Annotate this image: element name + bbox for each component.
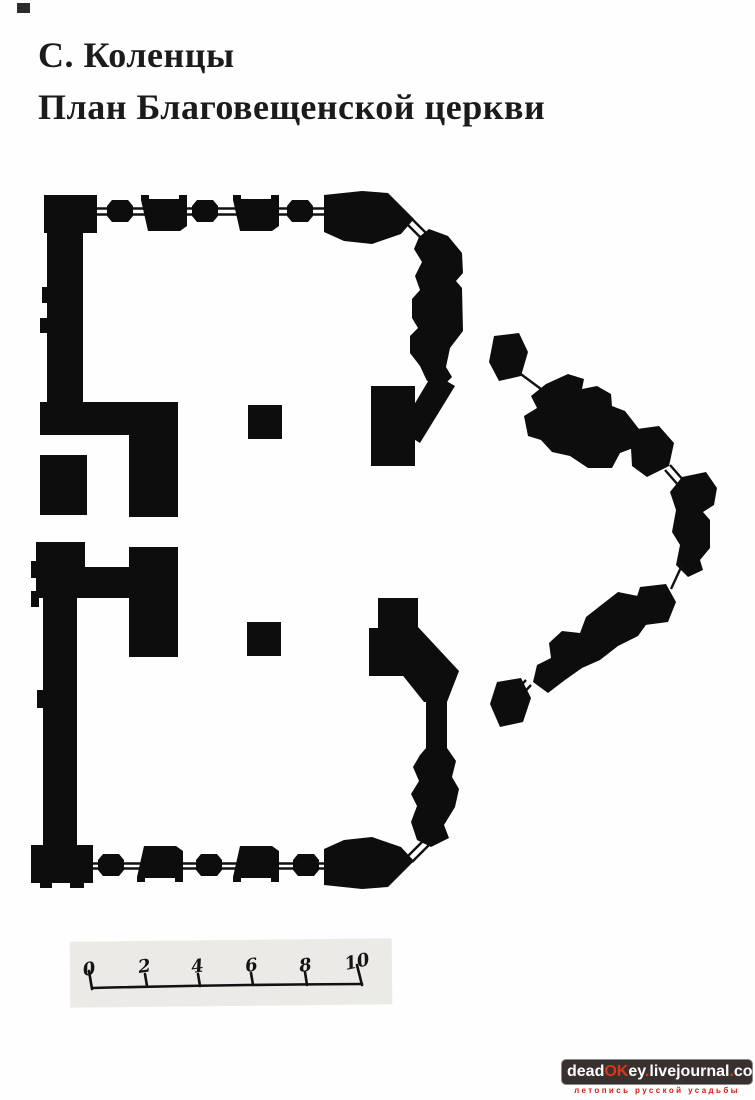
scanned-page: С. Коленцы План Благовещенской церкви xyxy=(0,0,755,1100)
watermark-url-part: ey xyxy=(628,1063,645,1080)
south-pillar xyxy=(247,622,281,656)
apse-east-point xyxy=(670,472,717,577)
watermark-url-part: dead xyxy=(567,1063,604,1080)
central-pillars xyxy=(247,405,282,656)
watermark-url-accent: OK xyxy=(604,1063,628,1080)
scale-bar-background xyxy=(70,938,393,1007)
southeast-canted-pier xyxy=(324,837,414,889)
apse-pier-south xyxy=(490,678,531,727)
north-pillar xyxy=(248,405,282,439)
scale-bar: 0 2 4 6 8 10 xyxy=(70,938,393,1007)
watermark-url-part: livejournal xyxy=(649,1063,729,1080)
apse-mass-northeast xyxy=(524,374,639,468)
west-wall xyxy=(31,195,178,848)
watermark-url-bar: deadOKey.livejournal.com xyxy=(561,1059,753,1085)
church-floor-plan: 0 2 4 6 8 10 xyxy=(0,0,755,1100)
northeast-canted-pier xyxy=(324,191,414,244)
watermark-tagline: летопись русской усадьбы xyxy=(561,1086,753,1095)
north-wall xyxy=(44,191,434,246)
southeast-corner xyxy=(369,598,459,847)
apse xyxy=(489,333,717,727)
northeast-corner xyxy=(371,229,463,466)
south-wall xyxy=(31,835,434,889)
scan-artifact xyxy=(17,3,30,13)
watermark: deadOKey.livejournal.com летопись русско… xyxy=(561,1059,753,1095)
watermark-url-part: com xyxy=(734,1063,755,1080)
apse-mass-southeast xyxy=(533,592,653,693)
